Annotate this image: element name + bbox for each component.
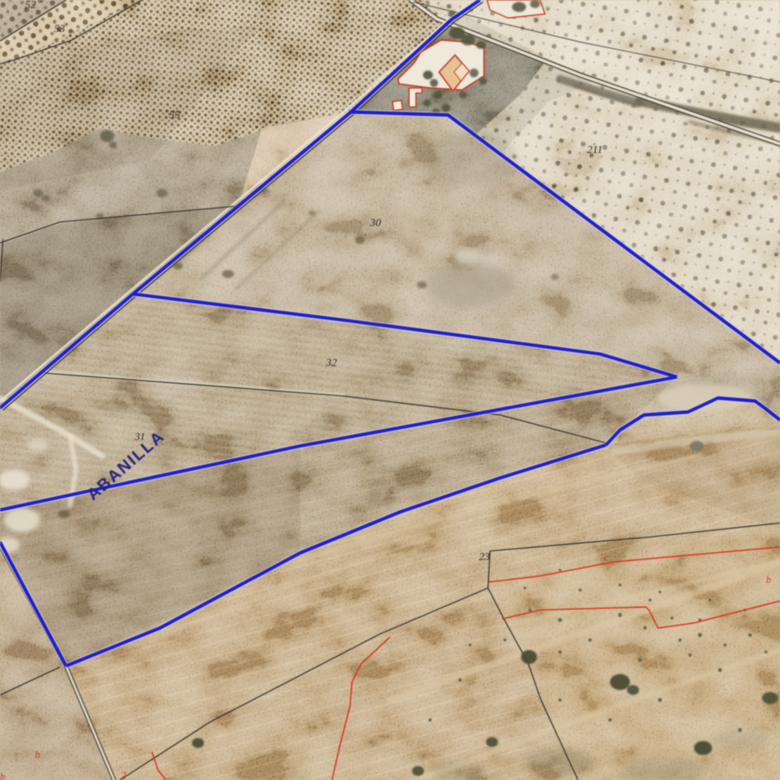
svg-text:b: b bbox=[766, 575, 771, 586]
svg-text:30: 30 bbox=[369, 217, 382, 229]
svg-text:52: 52 bbox=[25, 0, 37, 11]
svg-text:b: b bbox=[35, 750, 40, 761]
svg-text:23: 23 bbox=[479, 551, 491, 563]
svg-text:55: 55 bbox=[169, 109, 181, 121]
svg-text:2: 2 bbox=[121, 771, 126, 780]
svg-text:b: b bbox=[0, 772, 5, 780]
svg-text:53: 53 bbox=[54, 23, 66, 35]
svg-text:211: 211 bbox=[587, 144, 603, 156]
svg-text:c: c bbox=[604, 553, 609, 564]
svg-text:32: 32 bbox=[325, 357, 338, 369]
